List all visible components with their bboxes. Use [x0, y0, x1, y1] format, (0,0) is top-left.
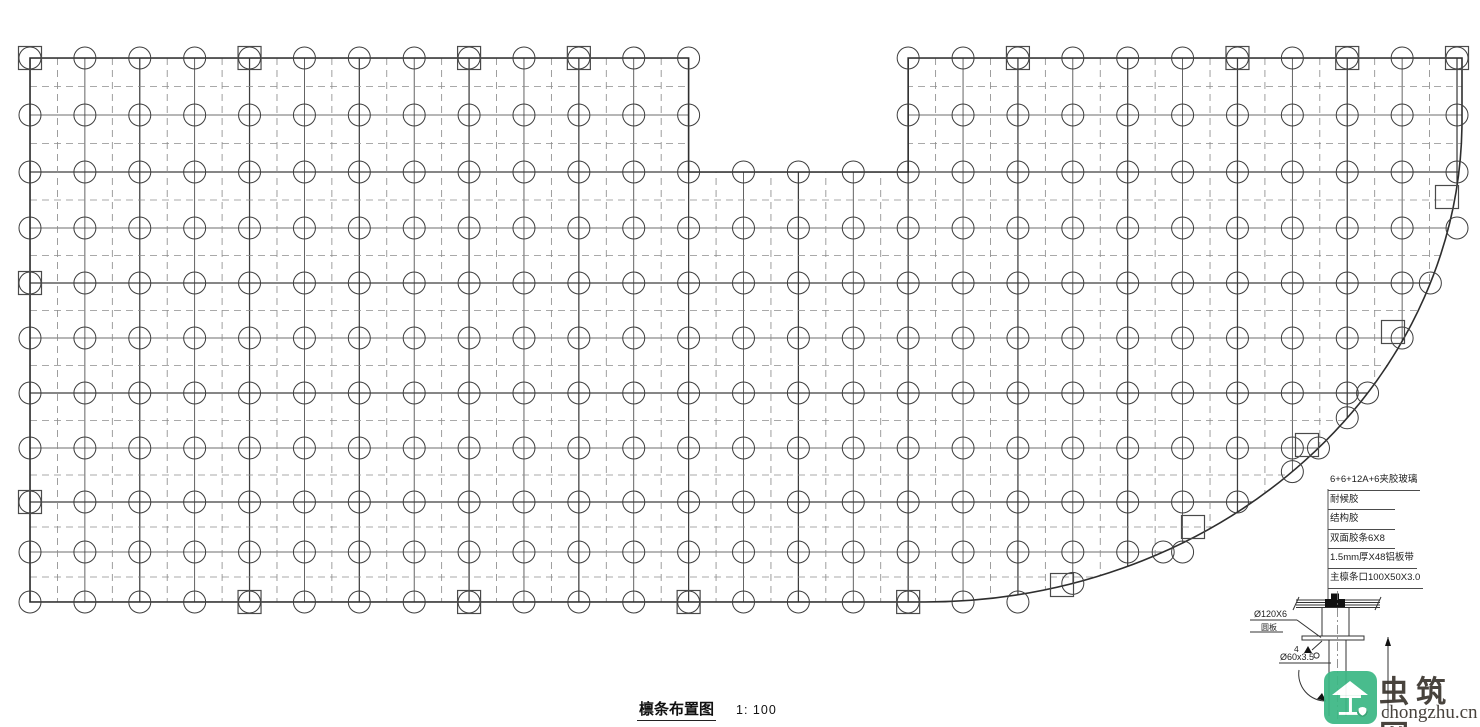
callout-alum-strip: 1.5mm厚X48铝板带 — [1328, 549, 1417, 569]
detail-plate-name-label: 圆板 — [1261, 622, 1277, 633]
detail-pipe-spec-label: Ø60x3.5 — [1280, 652, 1314, 662]
drawing-title-block: 檩条布置图1: 100 — [637, 698, 777, 719]
chongzhu-logo-icon: 工 — [1324, 671, 1377, 724]
callout-structural-sealant: 结构胶 — [1328, 510, 1395, 530]
callout-main-purlin: 主檩条口100X50X3.0 — [1328, 569, 1423, 589]
detail-plate-dia-label: Ø120X6 — [1254, 609, 1287, 619]
watermark-site-domain: chongzhu.cn — [1381, 702, 1478, 724]
house-body-glyph: 工 — [1324, 693, 1377, 719]
callout-weather-sealant: 耐候胶 — [1328, 491, 1395, 511]
purlin-layout-sheet: 6+6+12A+6夹胶玻璃 耐候胶 结构胶 双面胶条6X8 1.5mm厚X48铝… — [0, 0, 1480, 727]
watermark: 工 虫筑网 chongzhu.cn — [1320, 666, 1480, 727]
drawing-title: 檩条布置图 — [637, 701, 716, 721]
callout-tape: 双面胶条6X8 — [1328, 530, 1395, 550]
material-callout-list: 6+6+12A+6夹胶玻璃 耐候胶 结构胶 双面胶条6X8 1.5mm厚X48铝… — [1328, 471, 1423, 589]
drawing-scale: 1: 100 — [736, 703, 777, 717]
callout-glass: 6+6+12A+6夹胶玻璃 — [1328, 471, 1420, 491]
panda-face-icon — [1357, 707, 1368, 717]
